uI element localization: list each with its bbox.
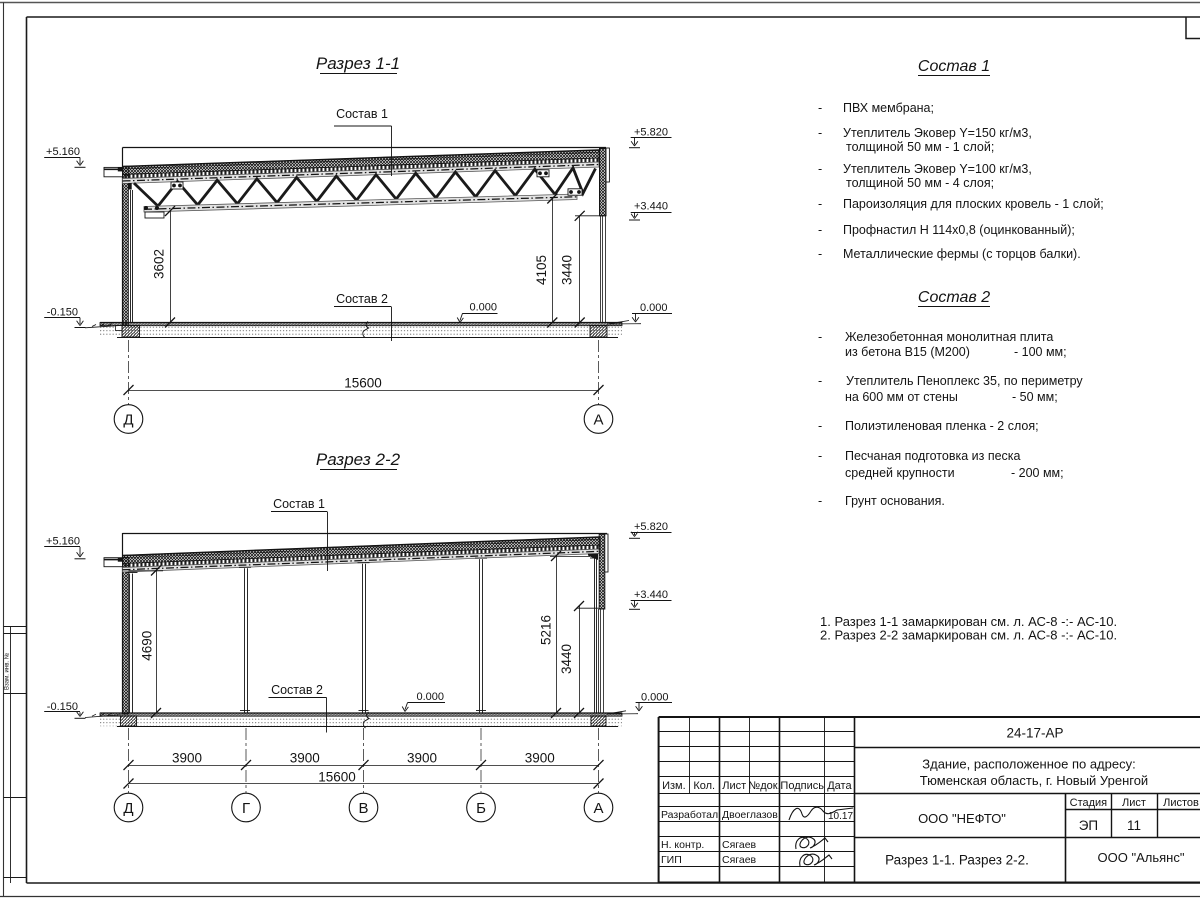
svg-text:из бетона В15 (М200): из бетона В15 (М200) xyxy=(845,345,970,359)
svg-text:+5.820: +5.820 xyxy=(634,126,668,138)
svg-text:Д: Д xyxy=(123,412,133,429)
svg-text:Утеплитель Эковер Y=150 кг/м3,: Утеплитель Эковер Y=150 кг/м3, xyxy=(843,126,1032,140)
svg-text:+3.440: +3.440 xyxy=(634,201,668,213)
svg-text:Состав 1: Состав 1 xyxy=(273,497,325,511)
svg-text:Полиэтиленовая пленка - 2 слоя: Полиэтиленовая пленка - 2 слоя; xyxy=(845,419,1039,433)
svg-text:-: - xyxy=(818,449,822,463)
svg-text:Разрез 2-2: Разрез 2-2 xyxy=(316,450,401,469)
svg-text:Тюменская область, г. Новый Ур: Тюменская область, г. Новый Уренгой xyxy=(920,773,1148,788)
svg-text:Стадия: Стадия xyxy=(1070,797,1108,809)
svg-text:Б: Б xyxy=(476,800,486,817)
svg-text:-: - xyxy=(818,247,822,261)
svg-text:Песчаная подготовка из песка: Песчаная подготовка из песка xyxy=(845,449,1021,463)
svg-text:3900: 3900 xyxy=(290,751,320,766)
svg-text:3440: 3440 xyxy=(560,255,575,285)
svg-text:3900: 3900 xyxy=(407,751,437,766)
svg-text:3602: 3602 xyxy=(152,249,167,279)
svg-text:Утеплитель Эковер Y=100 кг/м3,: Утеплитель Эковер Y=100 кг/м3, xyxy=(843,162,1032,176)
svg-text:3900: 3900 xyxy=(172,751,202,766)
svg-text:24-17-АР: 24-17-АР xyxy=(1006,726,1063,741)
svg-text:Взам. инв. №: Взам. инв. № xyxy=(4,653,11,690)
svg-text:Профнастил Н 114х0,8 (оцинкова: Профнастил Н 114х0,8 (оцинкованный); xyxy=(843,223,1075,237)
svg-text:ЭП: ЭП xyxy=(1079,818,1098,833)
svg-text:- 50 мм;: - 50 мм; xyxy=(1012,390,1058,404)
svg-text:Состав 1: Состав 1 xyxy=(918,58,990,75)
svg-text:+5.160: +5.160 xyxy=(46,146,80,158)
svg-text:-: - xyxy=(818,494,822,508)
svg-text:-: - xyxy=(818,126,822,140)
svg-text:+3.440: +3.440 xyxy=(634,589,668,601)
svg-text:Сягаев: Сягаев xyxy=(722,854,757,866)
svg-text:А: А xyxy=(593,800,603,817)
svg-text:Утеплитель Пеноплекс 35, по пе: Утеплитель Пеноплекс 35, по периметру xyxy=(846,374,1083,388)
svg-text:ООО "Альянс": ООО "Альянс" xyxy=(1098,850,1185,865)
svg-text:А: А xyxy=(593,412,603,429)
svg-text:-: - xyxy=(818,162,822,176)
svg-text:3900: 3900 xyxy=(525,751,555,766)
svg-text:Разрез 1-1: Разрез 1-1 xyxy=(316,54,400,73)
svg-text:толщиной 50 мм - 4 слоя;: толщиной 50 мм - 4 слоя; xyxy=(846,176,994,190)
svg-text:на 600 мм от стены: на 600 мм от стены xyxy=(845,390,958,404)
svg-text:Здание, расположенное по адрес: Здание, расположенное по адресу: xyxy=(922,757,1135,772)
svg-text:ГИП: ГИП xyxy=(661,854,682,866)
svg-text:0.000: 0.000 xyxy=(641,692,669,704)
svg-text:Кол.: Кол. xyxy=(693,780,715,792)
svg-text:+5.160: +5.160 xyxy=(46,536,80,548)
svg-text:3440: 3440 xyxy=(559,644,574,674)
svg-text:2. Разрез 2-2 замаркирован см.: 2. Разрез 2-2 замаркирован см. л. АС-8 -… xyxy=(820,628,1117,643)
svg-text:Металлические фермы (с торцов: Металлические фермы (с торцов балки). xyxy=(843,247,1081,261)
svg-text:-: - xyxy=(818,101,822,115)
svg-text:Г: Г xyxy=(242,800,250,817)
svg-text:Пароизоляция для плоских крове: Пароизоляция для плоских кровель - 1 сло… xyxy=(843,197,1104,211)
svg-text:ООО "НЕФТО": ООО "НЕФТО" xyxy=(918,811,1006,826)
svg-text:Грунт основания.: Грунт основания. xyxy=(845,494,945,508)
svg-text:Н. контр.: Н. контр. xyxy=(661,839,704,851)
svg-text:15600: 15600 xyxy=(318,770,356,785)
svg-text:Состав 2: Состав 2 xyxy=(336,292,388,306)
svg-text:Разработал: Разработал xyxy=(661,809,718,821)
svg-text:- 100 мм;: - 100 мм; xyxy=(1014,345,1067,359)
svg-text:Двоеглазов: Двоеглазов xyxy=(722,809,778,821)
svg-text:11: 11 xyxy=(1127,818,1141,833)
svg-text:-: - xyxy=(818,197,822,211)
svg-text:-0.150: -0.150 xyxy=(47,306,78,318)
svg-text:Дата: Дата xyxy=(827,780,852,792)
svg-text:0.000: 0.000 xyxy=(640,302,668,314)
svg-text:5216: 5216 xyxy=(538,615,553,645)
svg-text:+5.820: +5.820 xyxy=(634,521,668,533)
svg-text:толщиной 50 мм - 1 слой;: толщиной 50 мм - 1 слой; xyxy=(846,140,994,154)
svg-text:Лист: Лист xyxy=(1122,797,1146,809)
svg-text:Разрез 1-1. Разрез 2-2.: Разрез 1-1. Разрез 2-2. xyxy=(885,853,1029,868)
svg-text:Подпись: Подпись xyxy=(780,780,824,792)
svg-text:0.000: 0.000 xyxy=(416,691,444,703)
svg-text:Состав 1: Состав 1 xyxy=(336,107,388,121)
svg-text:- 200 мм;: - 200 мм; xyxy=(1011,466,1064,480)
svg-text:Д: Д xyxy=(123,800,133,817)
svg-text:В: В xyxy=(358,800,368,817)
svg-text:Состав 2: Состав 2 xyxy=(271,683,323,697)
svg-text:-: - xyxy=(818,223,822,237)
svg-text:Листов: Листов xyxy=(1163,797,1199,809)
svg-text:Состав 2: Состав 2 xyxy=(918,289,990,306)
svg-text:4105: 4105 xyxy=(534,255,549,285)
svg-text:15600: 15600 xyxy=(344,376,382,391)
svg-text:-: - xyxy=(818,374,822,388)
svg-text:ПВХ мембрана;: ПВХ мембрана; xyxy=(843,101,934,115)
svg-text:Сягаев: Сягаев xyxy=(722,839,757,851)
svg-text:средней крупности: средней крупности xyxy=(845,466,955,480)
svg-text:-: - xyxy=(818,330,822,344)
svg-text:№док.: №док. xyxy=(748,780,780,792)
svg-text:0.000: 0.000 xyxy=(469,302,497,314)
svg-text:Железобетонная монолитная пли: Железобетонная монолитная плита xyxy=(845,330,1053,344)
svg-text:Лист: Лист xyxy=(722,780,746,792)
svg-text:Изм.: Изм. xyxy=(662,780,686,792)
svg-text:4690: 4690 xyxy=(139,631,154,661)
svg-text:-: - xyxy=(818,419,822,433)
